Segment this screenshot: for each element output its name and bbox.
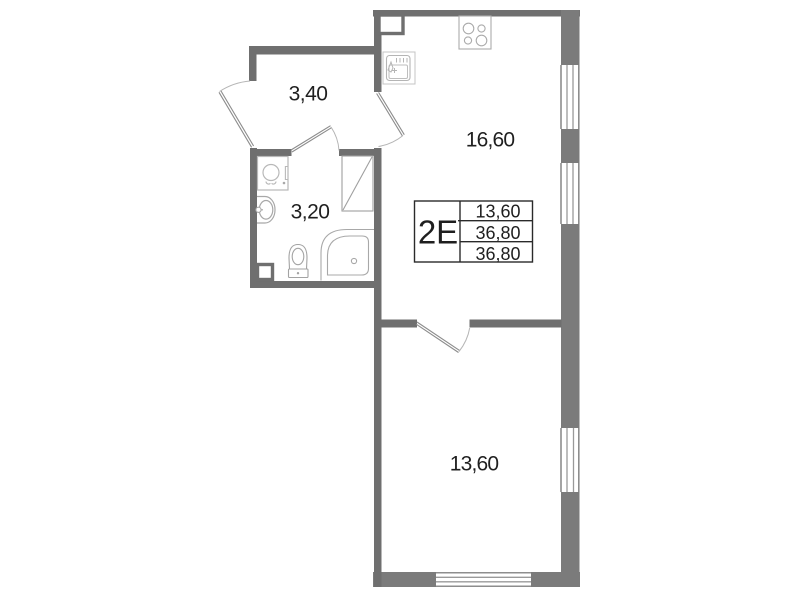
svg-text:36,80: 36,80 xyxy=(475,223,520,243)
svg-text:36,80: 36,80 xyxy=(475,244,520,264)
svg-text:3,20: 3,20 xyxy=(291,201,330,224)
svg-text:2E: 2E xyxy=(418,214,458,251)
svg-text:16,60: 16,60 xyxy=(466,129,515,152)
svg-text:3,40: 3,40 xyxy=(289,83,328,106)
svg-text:13,60: 13,60 xyxy=(450,453,499,476)
svg-text:13,60: 13,60 xyxy=(475,202,520,222)
